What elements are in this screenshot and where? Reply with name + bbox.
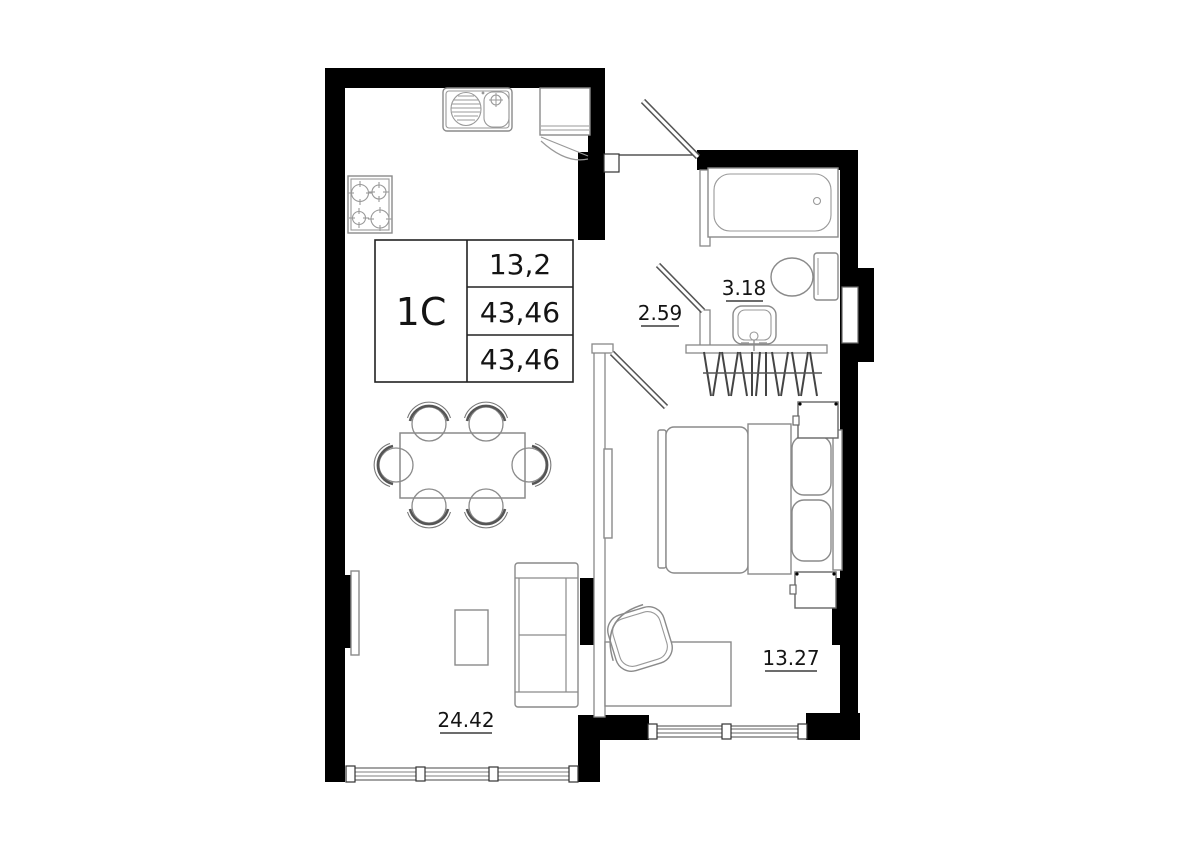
bedroom-area-label: 13.27 <box>762 646 819 670</box>
wall-tv-notch <box>345 575 351 648</box>
wall-right-jog <box>856 268 874 362</box>
floor-plan-drawing: 1C 13,2 43,46 43,46 <box>0 0 1200 850</box>
bed-blanket <box>748 424 791 574</box>
unit-area-row-1: 13,2 <box>489 248 551 281</box>
entry-door-jamb <box>604 154 619 172</box>
wall-pier-top <box>578 715 649 740</box>
nightstand-bottom <box>790 572 836 608</box>
window-living-room <box>346 766 578 782</box>
washbasin <box>733 306 776 351</box>
wall-left <box>325 68 345 782</box>
tv-bedroom <box>604 449 612 538</box>
dining-chair <box>408 402 451 441</box>
bed-footboard <box>658 430 666 568</box>
bed-headboard <box>833 430 842 570</box>
dining-chair <box>408 489 451 528</box>
bathroom-area-label: 3.18 <box>722 276 767 300</box>
sofa <box>515 563 578 707</box>
bed-pillow <box>792 500 831 561</box>
kitchen-sink <box>443 88 512 131</box>
wall-right <box>840 170 858 715</box>
bedroom-door-leaf <box>612 353 666 407</box>
floor-plan-canvas: 1C 13,2 43,46 43,46 <box>0 0 1200 850</box>
wall-top <box>325 68 605 88</box>
double-bed <box>658 424 842 574</box>
kitchen-living-area-label: 24.42 <box>437 708 494 732</box>
wall-bottom-right-corner <box>806 713 860 740</box>
sink-dot <box>482 92 485 95</box>
dining-chair <box>465 402 508 441</box>
hallway-area-label: 2.59 <box>638 301 683 325</box>
unit-area-row-3: 43,46 <box>480 343 560 376</box>
bathtub <box>708 168 838 237</box>
nightstand-top <box>793 402 838 438</box>
window-bedroom <box>648 724 807 739</box>
bathroom-wall-lower <box>700 310 710 346</box>
fridge-cabinet <box>540 88 590 160</box>
tv-living-room <box>351 571 359 655</box>
unit-area-row-2: 43,46 <box>480 296 560 329</box>
wardrobe-hangers <box>703 352 822 396</box>
bed-mattress <box>666 427 748 573</box>
toilet <box>771 253 838 300</box>
wall-pier-bottom <box>578 740 600 782</box>
partition-cap <box>592 344 613 353</box>
dining-chair <box>512 444 551 487</box>
coffee-table <box>455 610 488 665</box>
unit-type-label: 1C <box>396 290 447 334</box>
bathroom-wall-bottom <box>686 345 827 353</box>
drainboard-lines <box>451 96 481 120</box>
wall-bathroom-top <box>697 150 858 170</box>
stove <box>348 176 392 233</box>
dining-set <box>374 402 551 528</box>
dining-table <box>400 433 525 498</box>
dining-chair <box>374 444 413 487</box>
wall-niche <box>842 287 858 343</box>
entry-door-leaf <box>643 101 698 157</box>
bed-pillow <box>792 436 831 495</box>
dining-chair <box>465 489 508 528</box>
unit-card: 1C 13,2 43,46 43,46 <box>375 240 573 382</box>
